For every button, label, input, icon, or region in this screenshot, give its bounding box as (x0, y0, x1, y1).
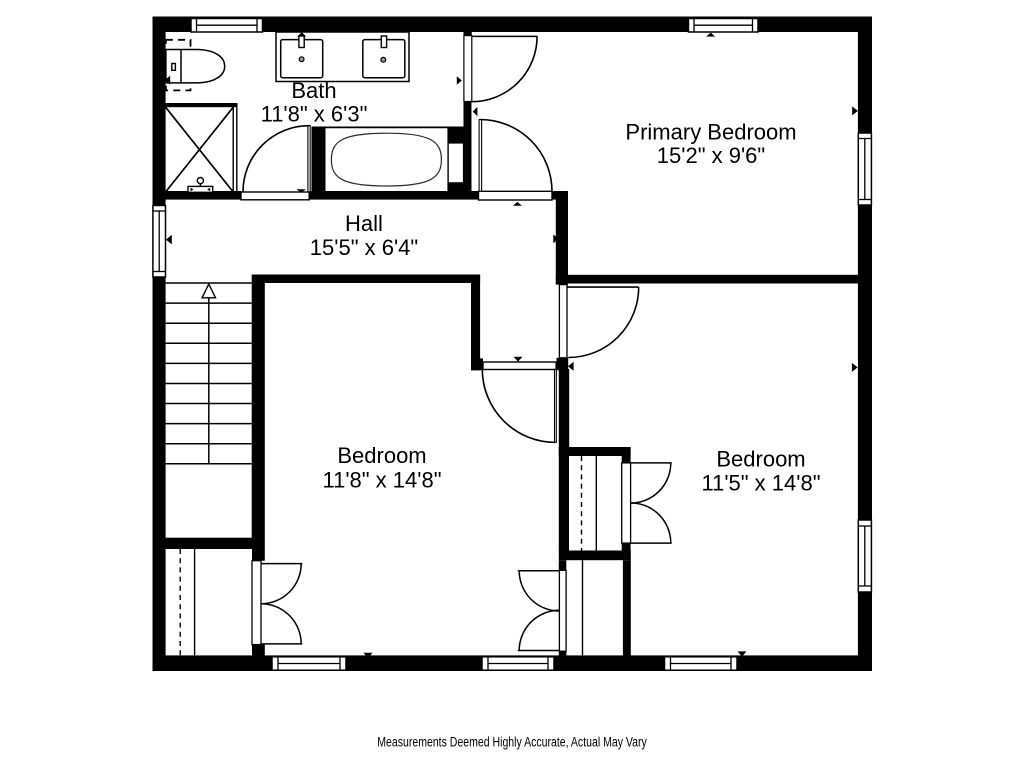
svg-text:11'5" x 14'8": 11'5" x 14'8" (701, 471, 820, 496)
svg-text:Measurements Deemed Highly Acc: Measurements Deemed Highly Accurate, Act… (377, 734, 647, 750)
svg-text:Bedroom: Bedroom (337, 443, 426, 468)
svg-text:Primary Bedroom: Primary Bedroom (625, 120, 796, 145)
svg-text:11'8" x 14'8": 11'8" x 14'8" (322, 468, 441, 493)
svg-text:Bath: Bath (291, 78, 336, 103)
svg-text:11'8" x 6'3": 11'8" x 6'3" (261, 102, 368, 127)
svg-text:Bedroom: Bedroom (716, 447, 805, 472)
svg-text:15'2" x 9'6": 15'2" x 9'6" (657, 143, 765, 168)
svg-text:Hall: Hall (345, 211, 383, 236)
svg-text:15'5" x 6'4": 15'5" x 6'4" (310, 235, 418, 260)
